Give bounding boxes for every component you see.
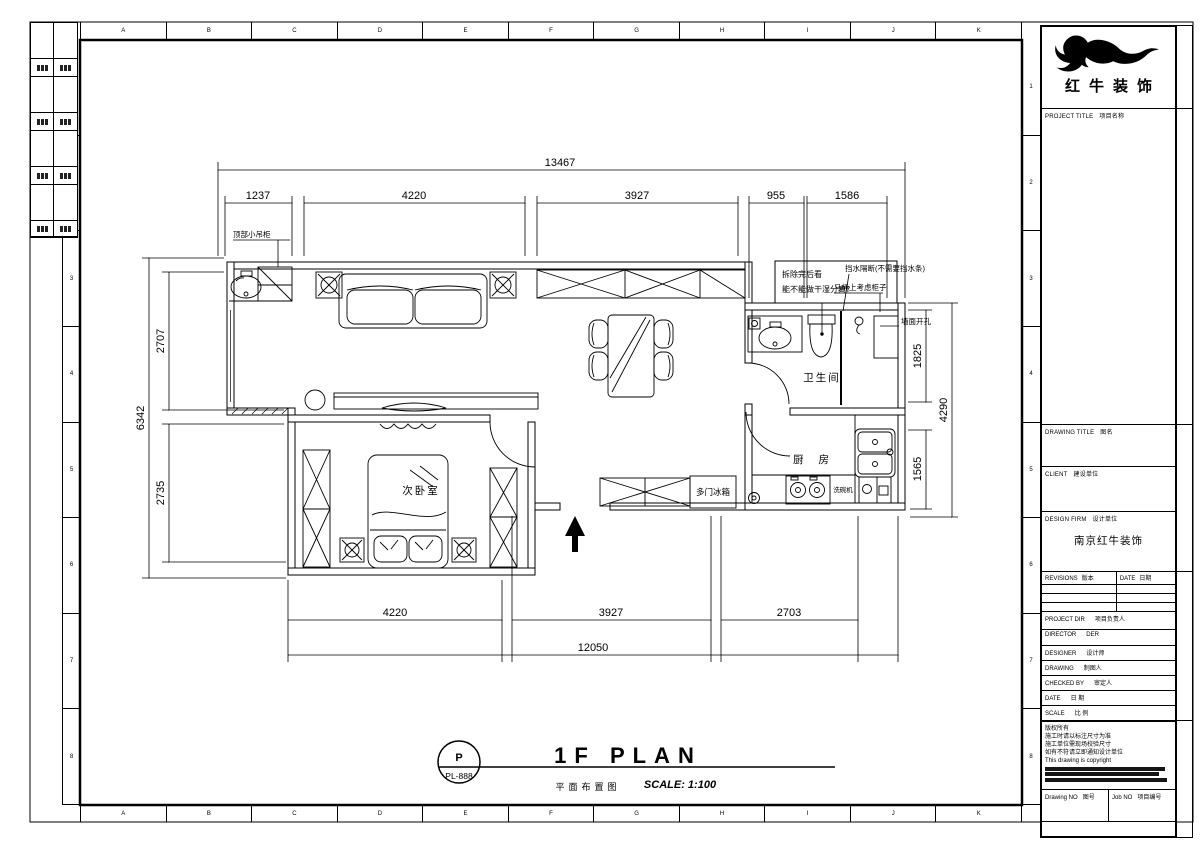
ruler-number: 6 bbox=[63, 518, 80, 614]
company-logo-cell: 红牛装饰 bbox=[1042, 27, 1175, 109]
client-section: CLIENT建设单位 bbox=[1042, 467, 1175, 512]
bed bbox=[368, 455, 448, 568]
desk bbox=[305, 390, 538, 411]
svg-text:13467: 13467 bbox=[545, 157, 576, 169]
ruler-letter: E bbox=[423, 22, 509, 40]
drawing-label-cn: 制图人 bbox=[1084, 666, 1102, 672]
column-symbol bbox=[316, 272, 342, 298]
plan-title: P PL-888 1F PLAN 平面布置图 SCALE: 1:100 bbox=[438, 741, 835, 792]
shower bbox=[841, 311, 898, 405]
copyright-fine-print bbox=[1045, 772, 1159, 776]
copyright-fine-print bbox=[1045, 767, 1165, 771]
svg-text:2707: 2707 bbox=[155, 329, 167, 353]
demolition-note-line1: 拆除完后看 bbox=[782, 269, 822, 279]
svg-text:1237: 1237 bbox=[246, 190, 270, 202]
ruler-number: 5 bbox=[63, 423, 80, 519]
note-line: 如有不符请立即通知设计单位 bbox=[1045, 749, 1172, 757]
svg-text:955: 955 bbox=[767, 190, 785, 202]
plan-title-en: 1F PLAN bbox=[554, 743, 702, 768]
revisions-label-en: REVISIONS bbox=[1045, 576, 1078, 582]
dishwasher-label: 洗碗机 bbox=[833, 485, 853, 494]
bedroom-label: 次卧室 bbox=[402, 484, 440, 497]
sheet-frame bbox=[30, 22, 1193, 822]
floor-plan-svg: 卫生间 厨 房 次卧室 多门冰箱 洗碗机 顶部小吊柜 拆除完后看 能不能做干湿分… bbox=[0, 0, 1200, 845]
plan-title-cn: 平面布置图 bbox=[555, 781, 620, 792]
date-label-en: DATE bbox=[1045, 696, 1061, 702]
ruler-number: 8 bbox=[63, 709, 80, 805]
fold-table bbox=[30, 22, 78, 238]
ruler-number: 3 bbox=[1022, 231, 1040, 327]
svg-text:1586: 1586 bbox=[835, 190, 859, 202]
ruler-top: ABCDEFGHIJK bbox=[80, 22, 1022, 40]
column-symbol bbox=[490, 272, 516, 298]
copyright-notes: 版权所有 施工时请以标注尺寸为准 施工单位需现场校验尺寸 如有不符请立即通知设计… bbox=[1042, 721, 1175, 790]
ruler-number: 3 bbox=[63, 231, 80, 327]
ruler-number: 6 bbox=[1022, 518, 1040, 614]
bathroom-door-arc bbox=[748, 363, 789, 404]
bathroom-vanity bbox=[748, 316, 802, 352]
drawing-title-label-cn: 图名 bbox=[1100, 430, 1112, 436]
plan-scale: SCALE: 1:100 bbox=[644, 779, 717, 791]
ruler-number: 8 bbox=[1022, 709, 1040, 805]
revisions-label-cn: 版本 bbox=[1082, 576, 1094, 582]
right-margin-strip bbox=[1177, 25, 1193, 838]
checked-by-label-cn: 审定人 bbox=[1094, 681, 1112, 687]
date-col-label-cn: 日期 bbox=[1139, 576, 1151, 582]
ruler-letter: C bbox=[252, 22, 338, 40]
note-line: 版权所有 bbox=[1045, 725, 1172, 733]
design-firm-value: 南京红牛装饰 bbox=[1045, 533, 1172, 548]
job-no-label-cn: 项目编号 bbox=[1137, 795, 1161, 801]
dining-table bbox=[589, 315, 673, 397]
wall-hatch bbox=[231, 310, 289, 414]
top-cabinet-note: 顶部小吊柜 bbox=[233, 229, 271, 239]
designer-row: DESIGNER设计师 bbox=[1042, 646, 1175, 661]
svg-text:4290: 4290 bbox=[938, 398, 950, 422]
ruler-right: 12345678 bbox=[1022, 40, 1040, 805]
design-firm-section: DESIGN FIRM设计单位 南京红牛装饰 bbox=[1042, 512, 1175, 572]
wash-cabinet bbox=[258, 267, 292, 301]
ruler-number: 5 bbox=[1022, 423, 1040, 519]
date-row: DATE日 期 bbox=[1042, 691, 1175, 706]
wall-hole-note: 墙面开孔 bbox=[901, 316, 931, 326]
stool bbox=[305, 390, 325, 410]
revisions-table: REVISIONS版本 DATE日期 bbox=[1042, 572, 1175, 612]
ruler-letter: F bbox=[509, 22, 595, 40]
drawing-row: DRAWING制图人 bbox=[1042, 661, 1175, 676]
design-firm-label-en: DESIGN FIRM bbox=[1045, 517, 1087, 523]
ruler-letter: K bbox=[936, 805, 1022, 822]
designer-label-en: DESIGNER bbox=[1045, 651, 1076, 657]
ruler-letter: E bbox=[423, 805, 509, 822]
ruler-letter: I bbox=[765, 805, 851, 822]
drawing-tag-number: PL-888 bbox=[445, 771, 473, 781]
title-block: 红牛装饰 PROJECT TITLE项目名称 DRAWING TITLE图名 C… bbox=[1040, 25, 1177, 838]
ruler-letter: B bbox=[167, 805, 253, 822]
ruler-letter: D bbox=[338, 805, 424, 822]
ruler-letter: D bbox=[338, 22, 424, 40]
title-block-footer-space bbox=[1042, 822, 1175, 836]
note-line: 施工单位需现场校验尺寸 bbox=[1045, 741, 1172, 749]
svg-text:1565: 1565 bbox=[912, 457, 924, 481]
svg-text:12050: 12050 bbox=[578, 642, 609, 654]
svg-text:4220: 4220 bbox=[383, 607, 407, 619]
drawing-no-label-cn: 图号 bbox=[1083, 795, 1095, 801]
ruler-letter: C bbox=[252, 805, 338, 822]
bathroom-label: 卫生间 bbox=[803, 371, 841, 384]
toilet-cabinet-note: 马桶上考虑柜子 bbox=[834, 282, 887, 292]
drawing-label-en: DRAWING bbox=[1045, 666, 1074, 672]
wash-basin bbox=[229, 271, 292, 301]
job-no-label-en: Job NO bbox=[1112, 795, 1132, 801]
svg-text:4220: 4220 bbox=[402, 190, 426, 202]
ruler-letter: G bbox=[594, 22, 680, 40]
wardrobe bbox=[490, 468, 517, 567]
water-barrier-note: 挡水隔断(不需要挡水条) bbox=[845, 263, 925, 273]
drawing-title-label-en: DRAWING TITLE bbox=[1045, 430, 1094, 436]
nightstand bbox=[452, 538, 476, 562]
ruler-number: 7 bbox=[63, 614, 80, 710]
client-label-cn: 建设单位 bbox=[1074, 472, 1099, 478]
drawing-sheet: 卫生间 厨 房 次卧室 多门冰箱 洗碗机 顶部小吊柜 拆除完后看 能不能做干湿分… bbox=[0, 0, 1200, 845]
ruler-letter: J bbox=[851, 805, 937, 822]
hall-cabinet bbox=[600, 478, 690, 506]
ruler-number: 2 bbox=[1022, 136, 1040, 232]
dishwasher bbox=[859, 477, 891, 503]
ruler-letter: F bbox=[509, 805, 595, 822]
date-label-cn: 日 期 bbox=[1071, 696, 1085, 702]
drawing-tag-letter: P bbox=[455, 752, 462, 764]
project-title-label-en: PROJECT TITLE bbox=[1045, 114, 1093, 120]
note-line: This drawing is copyright bbox=[1045, 757, 1172, 765]
curtain bbox=[380, 424, 436, 429]
svg-text:3927: 3927 bbox=[625, 190, 649, 202]
checked-by-label-en: CHECKED BY bbox=[1045, 681, 1084, 687]
scale-label-cn: 比 例 bbox=[1075, 711, 1089, 717]
note-line: 施工时请以标注尺寸为准 bbox=[1045, 733, 1172, 741]
svg-text:2735: 2735 bbox=[155, 481, 167, 505]
project-dir-label-cn: 项目负责人 bbox=[1095, 617, 1125, 623]
annotations: 顶部小吊柜 拆除完后看 能不能做干湿分离？ 挡水隔断(不需要挡水条) 马桶上考虑… bbox=[233, 229, 931, 336]
ruler-letter: I bbox=[765, 22, 851, 40]
project-title-section: PROJECT TITLE项目名称 bbox=[1042, 109, 1175, 425]
ruler-letter: J bbox=[851, 22, 937, 40]
designer-label-cn: 设计师 bbox=[1086, 651, 1104, 657]
gas-stove bbox=[786, 476, 830, 504]
entry-arrow bbox=[565, 516, 585, 552]
ruler-number: 4 bbox=[1022, 327, 1040, 423]
kitchen-sink bbox=[855, 429, 895, 477]
scale-row: SCALE比 例 bbox=[1042, 706, 1175, 721]
drawing-no-label-en: Drawing NO bbox=[1045, 795, 1078, 801]
kitchen-label: 厨 房 bbox=[793, 453, 835, 466]
project-title-label-cn: 项目名称 bbox=[1099, 114, 1124, 120]
svg-text:1825: 1825 bbox=[912, 344, 924, 368]
director-row: DIRECTORDER bbox=[1042, 630, 1175, 646]
project-dir-label-en: PROJECT DIR bbox=[1045, 617, 1085, 623]
drawing-title-section: DRAWING TITLE图名 bbox=[1042, 425, 1175, 467]
sofa bbox=[339, 274, 487, 328]
director-label-en: DIRECTOR bbox=[1045, 632, 1076, 638]
svg-text:3927: 3927 bbox=[599, 607, 623, 619]
nightstand bbox=[340, 538, 364, 562]
ruler-bottom: ABCDEFGHIJK bbox=[80, 805, 1022, 822]
fridge-label: 多门冰箱 bbox=[696, 487, 731, 497]
cabinet-strip bbox=[537, 270, 745, 298]
toilet bbox=[808, 315, 835, 357]
kitchen-door-arc bbox=[746, 412, 790, 456]
checked-by-row: CHECKED BY审定人 bbox=[1042, 676, 1175, 691]
ruler-letter: A bbox=[80, 22, 167, 40]
ruler-letter: K bbox=[936, 22, 1022, 40]
ruler-letter: H bbox=[680, 22, 766, 40]
svg-text:2703: 2703 bbox=[777, 607, 801, 619]
project-dir-row: PROJECT DIR项目负责人 bbox=[1042, 612, 1175, 630]
bull-logo bbox=[1048, 30, 1170, 74]
director-label-cn: DER bbox=[1086, 632, 1099, 638]
ruler-number: 1 bbox=[1022, 40, 1040, 136]
numbers-row: Drawing NO图号 Job NO项目编号 bbox=[1042, 790, 1175, 822]
walls bbox=[227, 262, 905, 575]
client-label-en: CLIENT bbox=[1045, 472, 1068, 478]
ruler-letter: B bbox=[167, 22, 253, 40]
date-col-label-en: DATE bbox=[1120, 576, 1136, 582]
wardrobe bbox=[303, 450, 330, 567]
copyright-fine-print bbox=[1045, 778, 1167, 782]
scale-label-en: SCALE bbox=[1045, 711, 1065, 717]
svg-text:6342: 6342 bbox=[135, 406, 147, 430]
ruler-number: 7 bbox=[1022, 614, 1040, 710]
ruler-letter: A bbox=[80, 805, 167, 822]
ruler-letter: G bbox=[594, 805, 680, 822]
ruler-letter: H bbox=[680, 805, 766, 822]
ruler-number: 4 bbox=[63, 327, 80, 423]
design-firm-label-cn: 设计单位 bbox=[1093, 517, 1118, 523]
company-name: 红牛装饰 bbox=[1042, 75, 1175, 96]
